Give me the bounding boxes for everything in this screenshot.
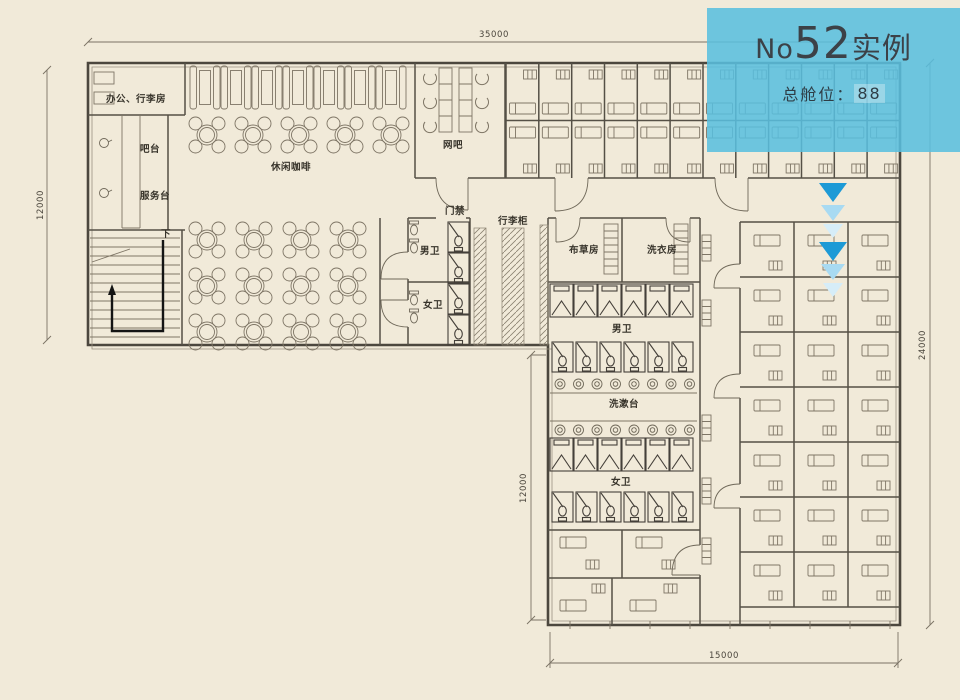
stallT-symbol [600, 342, 621, 372]
floor-plan-page: 35000 12000 24000 12000 15000 [0, 0, 960, 700]
down-arrow-icon [819, 242, 847, 261]
pcchair-symbol [424, 74, 437, 85]
label-linen-room: 布草房 [568, 244, 599, 256]
bedH-symbol [636, 537, 662, 548]
down-arrow-icon [823, 224, 843, 238]
bedH-symbol [754, 565, 780, 576]
rtable-symbol [283, 268, 319, 304]
stallS-symbol [622, 438, 645, 471]
bedH-symbol [630, 600, 656, 611]
bedH-symbol [862, 565, 888, 576]
booth-symbol [252, 66, 282, 109]
ladder-symbol [589, 164, 602, 173]
bedH-symbol [862, 510, 888, 521]
bedH-symbol [862, 455, 888, 466]
label-stairs-down: 下 [161, 229, 171, 240]
rtable-symbol [189, 268, 225, 304]
stallS-symbol [550, 438, 573, 471]
title-banner: No 52 实例 总舱位： 88 [707, 8, 960, 152]
ladder-symbol [586, 560, 599, 569]
basin-symbol [685, 425, 695, 435]
label-wash-counter: 洗漱台 [609, 398, 639, 410]
rtable-symbol [327, 117, 363, 153]
basin-symbol [629, 425, 639, 435]
basin-symbol [666, 425, 676, 435]
ladder-symbol [769, 481, 782, 490]
ladderV-symbol [702, 300, 711, 326]
ladder-symbol [823, 481, 836, 490]
dining-tables [189, 222, 366, 350]
label-office: 办公、行李房 [106, 93, 166, 105]
label-internet-bar: 网吧 [443, 140, 463, 151]
stallT-symbol [600, 492, 621, 522]
basin-symbol [611, 379, 621, 389]
teapot-symbol [100, 189, 113, 198]
bedH-symbol [808, 510, 834, 521]
bedH-symbol [862, 345, 888, 356]
rtable-symbol [330, 222, 366, 258]
label-mens-wc-small: 男卫 [420, 246, 440, 257]
label-leisure-cafe: 休闲咖啡 [270, 161, 311, 173]
ladder-symbol [556, 70, 569, 79]
booth-symbol [221, 66, 251, 109]
bedH-symbol [608, 103, 634, 114]
bedH-symbol [510, 127, 536, 138]
dimension-inner: 12000 [519, 473, 529, 503]
stallT-symbol [624, 342, 645, 372]
stallT-symbol [672, 492, 693, 522]
bedH-symbol [542, 127, 568, 138]
bedH-symbol [754, 400, 780, 411]
bedH-symbol [542, 103, 568, 114]
ladder-symbol [877, 426, 890, 435]
bedH-symbol [674, 127, 700, 138]
capacity-value: 88 [854, 84, 884, 103]
luggage-locker-strips [474, 225, 548, 345]
ladder-symbol [556, 164, 569, 173]
ladder-symbol [589, 70, 602, 79]
ladder-symbol [753, 164, 766, 173]
booth-symbol [190, 66, 220, 109]
basin-symbol [592, 425, 602, 435]
urinal-symbol [410, 221, 419, 235]
basin-symbol [648, 425, 658, 435]
ladder-symbol [720, 164, 733, 173]
ladder-symbol [769, 426, 782, 435]
banner-title-prefix: No [755, 34, 794, 65]
booth-symbol [283, 66, 313, 109]
bedH-symbol [754, 345, 780, 356]
ladderV-symbol [702, 538, 711, 564]
bedH-symbol [560, 537, 586, 548]
ladderV-symbol [702, 415, 711, 441]
ladder-symbol [664, 584, 677, 593]
bedH-symbol [754, 510, 780, 521]
ladder-symbol [769, 536, 782, 545]
booth-symbol [314, 66, 344, 109]
label-womens-wc-small: 女卫 [423, 299, 443, 311]
bedH-symbol [560, 600, 586, 611]
ladder-symbol [877, 371, 890, 380]
bedH-symbol [510, 103, 536, 114]
misc-furniture [100, 74, 489, 198]
dimension-bottom: 15000 [709, 651, 739, 661]
booth-seating [190, 66, 406, 109]
bedH-symbol [641, 127, 667, 138]
pcchair-symbol [424, 122, 437, 133]
label-access-gate: 门禁 [445, 205, 465, 217]
basin-symbol [611, 425, 621, 435]
basin-symbol [574, 425, 584, 435]
basin-symbol [592, 379, 602, 389]
stallS-symbol [646, 284, 669, 317]
stallS-symbol [670, 438, 693, 471]
ladder-symbol [769, 591, 782, 600]
pcchair-symbol [476, 98, 489, 109]
down-arrow-icon [819, 183, 847, 202]
ladder-symbol [688, 164, 701, 173]
bedH-symbol [754, 290, 780, 301]
urinal-symbol [410, 239, 419, 253]
ladder-symbol [769, 261, 782, 270]
ladder-symbol [769, 316, 782, 325]
rtable-symbol [189, 117, 225, 153]
bedH-symbol [608, 127, 634, 138]
rtable-symbol [281, 117, 317, 153]
rtable-symbol [283, 222, 319, 258]
ladder-symbol [688, 70, 701, 79]
ladderV-symbol [702, 478, 711, 504]
bedH-symbol [808, 345, 834, 356]
stallT-symbol [552, 342, 573, 372]
ladder-symbol [769, 371, 782, 380]
ladder-symbol [819, 164, 832, 173]
stallT-symbol [672, 342, 693, 372]
ladder-symbol [823, 591, 836, 600]
dimension-left: 12000 [36, 190, 46, 220]
basin-symbol [685, 379, 695, 389]
urinal-symbol [410, 291, 419, 305]
bedH-symbol [862, 290, 888, 301]
banner-title-number: 52 [794, 22, 852, 66]
stallS-symbol [598, 284, 621, 317]
bedH-symbol [808, 455, 834, 466]
stallS-symbol [550, 284, 573, 317]
ladderV-symbol [702, 235, 711, 261]
capacity-label: 总舱位： [782, 81, 854, 105]
rtable-symbol [330, 268, 366, 304]
ladder-symbol [823, 371, 836, 380]
banner-capacity: 总舱位： 88 [782, 81, 884, 105]
rtable-symbol [235, 117, 271, 153]
ladder-symbol [877, 316, 890, 325]
basin-symbol [666, 379, 676, 389]
rtable-symbol [189, 222, 225, 258]
stallT-symbol [648, 342, 669, 372]
ladder-symbol [823, 536, 836, 545]
ladder-symbol [655, 70, 668, 79]
stallT-symbol [448, 222, 469, 252]
stallS-symbol [646, 438, 669, 471]
label-service-desk: 服务台 [140, 190, 170, 202]
dimension-top: 35000 [479, 30, 509, 40]
bedH-symbol [862, 235, 888, 246]
stallT-symbol [448, 284, 469, 314]
pcchair-symbol [476, 122, 489, 133]
stallT-symbol [648, 492, 669, 522]
rtable-symbol [373, 117, 409, 153]
bedH-symbol [808, 400, 834, 411]
stallT-symbol [576, 342, 597, 372]
bedH-symbol [754, 235, 780, 246]
ladder-symbol [524, 70, 537, 79]
ladder-symbol [877, 261, 890, 270]
stallT-symbol [448, 315, 469, 345]
ladder-symbol [823, 426, 836, 435]
ladder-symbol [852, 164, 865, 173]
bedH-symbol [808, 565, 834, 576]
ladder-symbol [877, 591, 890, 600]
basin-symbol [555, 379, 565, 389]
ladder-symbol [592, 584, 605, 593]
stallS-symbol [598, 438, 621, 471]
rtable-symbol [236, 268, 272, 304]
ladder-symbol [622, 164, 635, 173]
ladder-symbol [786, 164, 799, 173]
bedH-symbol [674, 103, 700, 114]
teapot-symbol [100, 139, 113, 148]
bedH-symbol [862, 400, 888, 411]
stallS-symbol [622, 284, 645, 317]
booth-symbol [376, 66, 406, 109]
label-laundry-room: 洗衣房 [647, 244, 677, 256]
bedH-symbol [754, 455, 780, 466]
stallT-symbol [448, 253, 469, 283]
basin-symbol [574, 379, 584, 389]
cafe-tables [189, 117, 409, 153]
banner-title-suffix: 实例 [852, 25, 912, 67]
urinal-symbol [410, 309, 419, 323]
ladder-symbol [655, 164, 668, 173]
ladder-symbol [877, 481, 890, 490]
basin-symbol [555, 425, 565, 435]
stallT-symbol [552, 492, 573, 522]
label-mens-wc: 男卫 [612, 324, 632, 335]
booth-symbol [345, 66, 375, 109]
label-bar-counter: 吧台 [140, 143, 160, 155]
basin-symbol [648, 379, 658, 389]
stallS-symbol [574, 284, 597, 317]
stallS-symbol [670, 284, 693, 317]
ladder-symbol [823, 316, 836, 325]
ladder-symbol [877, 536, 890, 545]
pcchair-symbol [424, 98, 437, 109]
label-womens-wc: 女卫 [611, 476, 631, 488]
route-arrows [819, 183, 847, 297]
bedH-symbol [575, 127, 601, 138]
banner-title: No 52 实例 [755, 22, 912, 67]
ladder-symbol [622, 70, 635, 79]
rtable-symbol [236, 222, 272, 258]
dimension-right: 24000 [918, 330, 928, 360]
down-arrow-icon [821, 205, 845, 221]
ladder-symbol [524, 164, 537, 173]
label-luggage-lockers: 行李柜 [497, 215, 528, 227]
bedH-symbol [575, 103, 601, 114]
pcchair-symbol [476, 74, 489, 85]
stallS-symbol [574, 438, 597, 471]
bedH-symbol [641, 103, 667, 114]
stallT-symbol [624, 492, 645, 522]
basin-symbol [629, 379, 639, 389]
stallT-symbol [576, 492, 597, 522]
